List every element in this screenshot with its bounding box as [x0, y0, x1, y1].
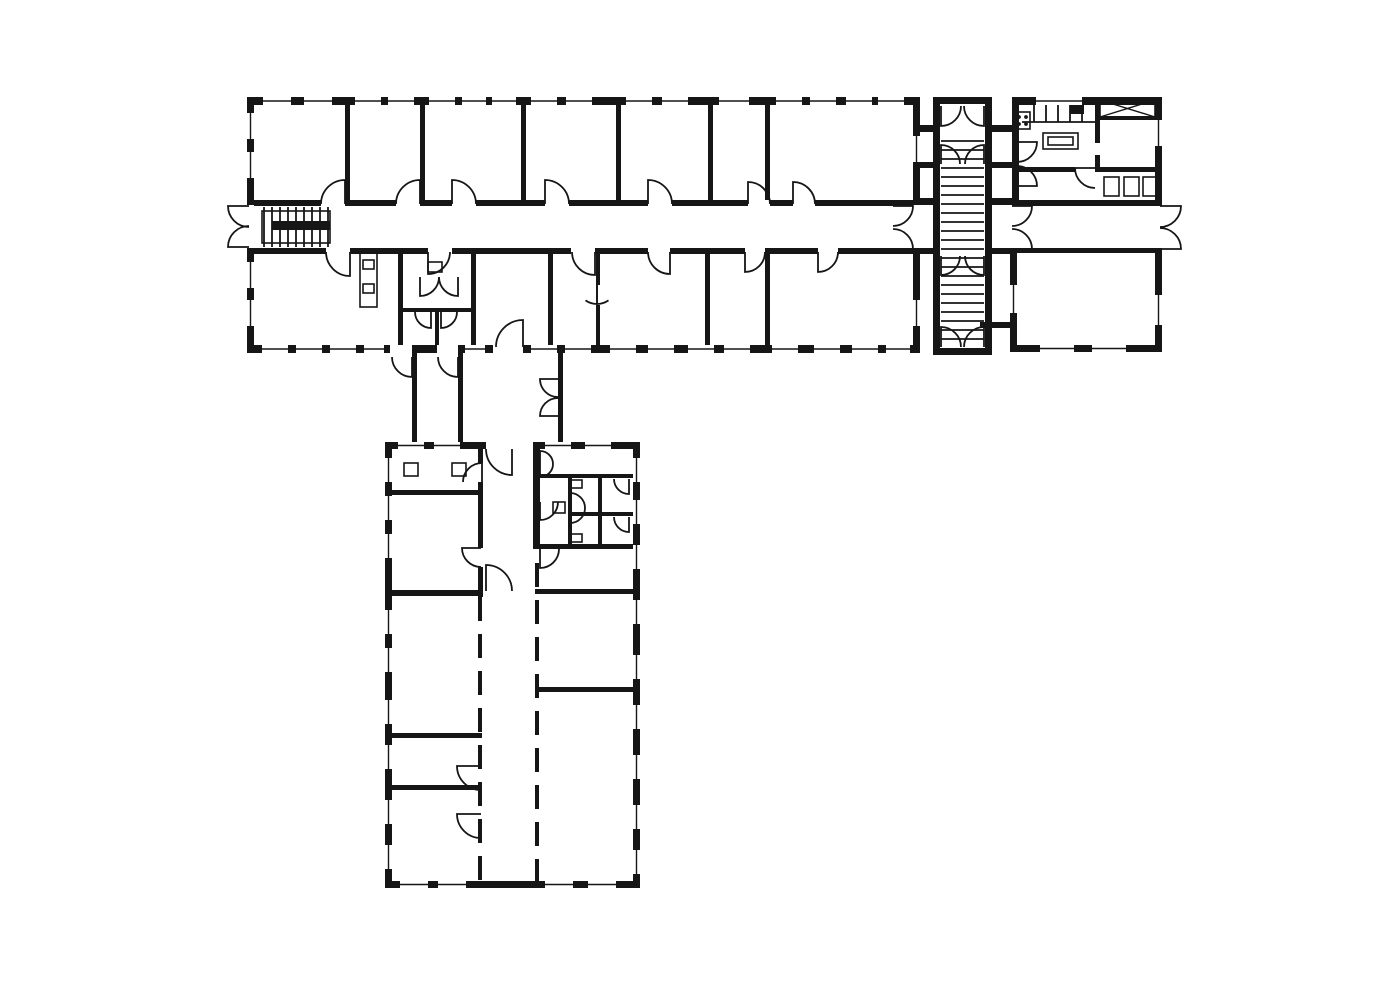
door-swing — [228, 206, 249, 227]
wall-segment — [596, 305, 600, 345]
door-swing — [545, 180, 569, 204]
wall-segment — [540, 474, 633, 478]
door-swing — [1012, 229, 1032, 249]
door-swing — [893, 229, 913, 249]
door-swing — [1012, 206, 1032, 226]
door-swing — [965, 145, 984, 164]
stove-burner — [1024, 122, 1028, 126]
door-swing — [396, 180, 420, 204]
wall-segment — [1012, 248, 1162, 253]
wall-segment — [254, 200, 321, 206]
wall-segment — [770, 200, 793, 206]
wall-segment — [765, 248, 818, 254]
wall-segment — [595, 248, 648, 254]
wall-segment — [980, 322, 1013, 328]
door-swing — [893, 206, 913, 226]
door-swing — [540, 451, 553, 464]
door-swing — [415, 312, 431, 328]
door-swing — [462, 548, 481, 567]
door-swing — [540, 379, 558, 397]
wall-segment — [569, 200, 648, 206]
door-swing — [228, 226, 249, 247]
wall-segment — [672, 200, 748, 206]
wall-segment — [476, 200, 545, 206]
door-swing — [570, 493, 585, 508]
table-inner — [1048, 137, 1073, 145]
door-swing — [438, 357, 458, 377]
door-swing — [572, 252, 595, 275]
door-swing — [818, 252, 838, 272]
wall-segment — [670, 248, 745, 254]
door-swing — [941, 145, 960, 164]
door-swing — [648, 252, 670, 274]
wall-segment — [392, 490, 482, 495]
door-swing — [648, 180, 672, 204]
wall-segment — [920, 125, 933, 132]
door-swing — [441, 312, 457, 328]
wall-segment — [705, 254, 710, 345]
door-swing — [1075, 168, 1095, 188]
wall-segment — [420, 200, 452, 206]
door-swing — [326, 252, 350, 276]
wall-segment — [533, 544, 633, 549]
wall-segment — [548, 254, 553, 345]
wall-segment — [452, 248, 571, 254]
kitchen-sink-block — [1070, 105, 1084, 114]
door-swing — [392, 357, 412, 377]
door-swing — [1160, 228, 1181, 249]
toilet — [571, 534, 582, 542]
door-swing — [496, 320, 523, 347]
stove-burner — [1017, 122, 1021, 126]
wall-segment — [920, 248, 933, 254]
wall-segment — [992, 125, 1012, 132]
stove-burner — [1024, 115, 1028, 119]
wall-segment — [471, 254, 476, 345]
wall-segment — [933, 97, 940, 355]
wall-segment — [1012, 97, 1162, 105]
door-swing — [486, 449, 512, 475]
wall-segment — [521, 105, 526, 200]
floor-plan-drawing — [0, 0, 1400, 984]
door-swing — [1017, 142, 1037, 162]
wall-segment — [1095, 155, 1100, 172]
wall-segment — [708, 105, 713, 200]
wall-segment — [392, 733, 482, 738]
wall-segment — [992, 162, 1012, 168]
floor-plan-page: Architectural floor plan — L-shaped buil… — [0, 0, 1400, 984]
wall-segment — [920, 198, 933, 205]
wall-segment — [1095, 167, 1160, 172]
dashed-walls — [480, 563, 537, 881]
wall-segment — [992, 248, 1012, 254]
wall-segment — [933, 97, 992, 104]
wall-segment — [478, 449, 483, 463]
wall-segment — [1010, 345, 1162, 352]
wall-segment — [435, 310, 439, 345]
door-swing — [614, 479, 629, 494]
door-swing — [457, 814, 481, 838]
wall-segment — [765, 105, 770, 200]
shelf-box — [363, 260, 374, 269]
door-swing — [540, 502, 558, 520]
stair-landing-bar — [272, 221, 330, 230]
wall-segment — [535, 687, 633, 692]
door-swing — [540, 398, 558, 416]
wall-segment — [254, 248, 326, 254]
door-swing — [586, 284, 598, 304]
door-swing — [1160, 206, 1181, 227]
doors — [228, 106, 1181, 838]
wall-segment — [412, 345, 437, 353]
wall-segment — [616, 105, 621, 200]
door-swing — [428, 252, 450, 274]
door-swing — [486, 565, 512, 591]
wall-segment — [1012, 200, 1162, 206]
door-swing — [793, 182, 815, 204]
wall-segment — [533, 448, 540, 549]
door-swing — [439, 277, 458, 296]
door-swing — [321, 180, 345, 204]
door-swing — [540, 549, 559, 568]
door-swing — [614, 517, 629, 532]
wall-segment — [558, 353, 563, 442]
windows — [247, 97, 1162, 888]
wall-segment — [478, 482, 483, 548]
column — [404, 463, 418, 476]
door-swing — [941, 106, 961, 126]
cabinet — [1124, 177, 1139, 196]
door-swing — [452, 180, 476, 204]
wall-segment — [985, 97, 992, 355]
wall-segment — [933, 348, 992, 355]
walls — [247, 97, 1162, 888]
door-swing — [597, 284, 609, 304]
wall-segment — [478, 567, 483, 597]
door-swing — [420, 277, 439, 296]
wall-segment — [765, 254, 770, 345]
shelf-box — [363, 284, 374, 293]
wall-segment — [535, 589, 633, 594]
wall-segment — [392, 590, 482, 596]
wall-segment — [345, 200, 396, 206]
door-swing — [745, 252, 765, 272]
wall-segment — [598, 478, 602, 544]
toilet — [571, 480, 582, 488]
cabinet — [1104, 177, 1119, 196]
wall-segment — [398, 254, 403, 345]
stove-burner — [1017, 115, 1021, 119]
wall-segment — [992, 198, 1012, 205]
wall-segment — [920, 162, 933, 168]
wall-segment — [596, 254, 600, 285]
door-swing — [964, 106, 984, 126]
